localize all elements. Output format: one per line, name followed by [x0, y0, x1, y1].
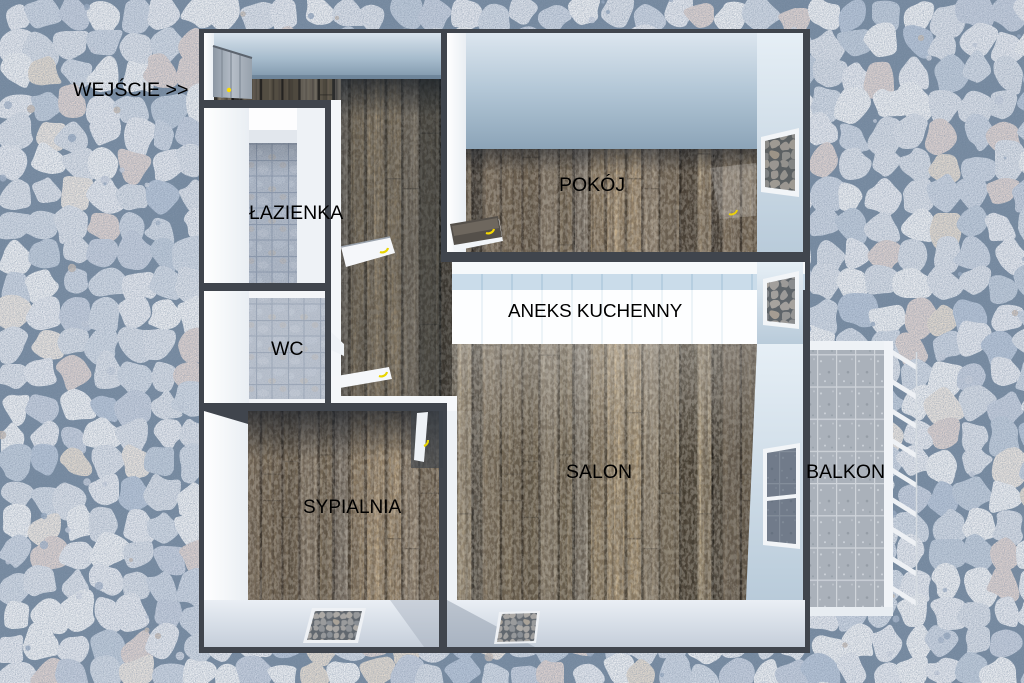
svg-text:WC: WC	[271, 338, 304, 360]
svg-text:SYPIALNIA: SYPIALNIA	[303, 497, 402, 518]
svg-text:SALON: SALON	[566, 461, 632, 483]
svg-text:ANEKS KUCHENNY: ANEKS KUCHENNY	[508, 300, 683, 321]
svg-text:POKÓJ: POKÓJ	[559, 173, 625, 196]
svg-text:BALKON: BALKON	[806, 461, 885, 483]
svg-text:ŁAZIENKA: ŁAZIENKA	[249, 202, 343, 224]
svg-text:WEJŚCIE >>: WEJŚCIE >>	[73, 77, 188, 101]
